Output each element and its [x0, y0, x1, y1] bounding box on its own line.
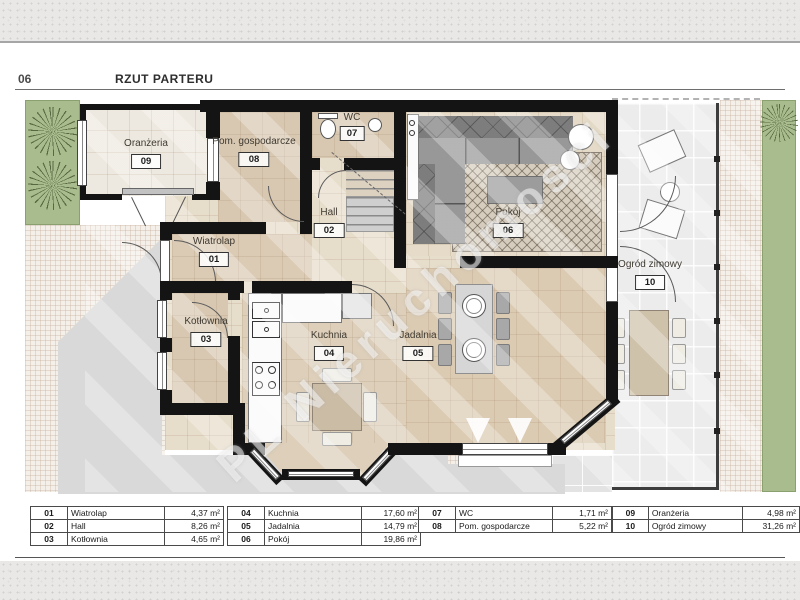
mullion [714, 156, 720, 162]
chair [363, 392, 377, 422]
stove-burner [255, 381, 263, 389]
legend-room-area: 31,26 m² [742, 520, 799, 533]
kitchen-table [312, 383, 362, 431]
kitchen-cabinet [282, 293, 342, 323]
room-number: 10 [635, 275, 666, 290]
legend-room-name: Hall [68, 520, 165, 533]
mullion [714, 428, 720, 434]
wall [200, 100, 618, 112]
window [77, 120, 87, 186]
chair [438, 318, 452, 340]
plant-icon [28, 107, 77, 156]
room-label-kotlownia: Kotłownia 03 [184, 316, 227, 347]
wall [312, 158, 320, 170]
wall [80, 194, 122, 200]
legend-room-area: 4,98 m² [742, 507, 799, 520]
sink-icon [368, 118, 382, 132]
legend-room-area: 4,65 m² [165, 533, 224, 546]
wall [160, 222, 172, 240]
room-label-pom-gospodarcze: Pom. gospodarcze 08 [212, 136, 295, 167]
legend-row: 10Ogród zimowy31,26 m² [613, 520, 800, 533]
chair [438, 292, 452, 314]
entrance-opening [160, 240, 170, 282]
legend-room-number: 10 [613, 520, 649, 533]
mullion [714, 372, 720, 378]
toilet-icon [320, 119, 336, 139]
legend-room-area: 14,79 m² [362, 520, 421, 533]
room-label-hall: Hall 02 [314, 207, 345, 238]
wall [160, 338, 172, 352]
chair [296, 392, 310, 422]
legend-row: 06Pokój19,86 m² [228, 533, 421, 546]
room-name: Kotłownia [184, 316, 227, 327]
stove-burner [268, 366, 276, 374]
window [157, 352, 167, 390]
room-number: 09 [131, 154, 162, 169]
legend-room-name: Wiatrolap [68, 507, 165, 520]
legend-room-area: 5,22 m² [553, 520, 612, 533]
wall [606, 302, 618, 400]
legend-room-number: 08 [419, 520, 456, 533]
legend-row: 01Wiatrolap4,37 m² [31, 507, 224, 520]
legend-room-area: 8,26 m² [165, 520, 224, 533]
legend-room-area: 4,37 m² [165, 507, 224, 520]
room-number: 07 [340, 126, 365, 141]
garden-strip-right [762, 100, 796, 492]
room-name: Pokój [493, 207, 524, 218]
legend-room-number: 06 [228, 533, 265, 546]
legend-row: 05Jadalnia14,79 m² [228, 520, 421, 533]
legend-room-number: 09 [613, 507, 649, 520]
terrace-door-sill [458, 455, 552, 467]
room-label-kuchnia: Kuchnia 04 [311, 330, 347, 361]
legend-room-name: Pokój [265, 533, 362, 546]
room-number: 01 [199, 252, 230, 267]
room-name: Ogród zimowy [618, 259, 682, 270]
room-name: Wiatrolap [193, 236, 235, 247]
chair [496, 344, 510, 366]
radiator-valve [409, 120, 415, 126]
legend-table-4: 09Oranżeria4,98 m² 10Ogród zimowy31,26 m… [612, 506, 800, 533]
footer-rule [15, 557, 785, 558]
wall [206, 100, 220, 138]
door-leaf [131, 197, 146, 226]
chair [322, 432, 352, 446]
floor-plan-page: 06 RZUT PARTERU [0, 0, 800, 600]
room-name: Kuchnia [311, 330, 347, 341]
legend-table-1: 01Wiatrolap4,37 m² 02Hall8,26 m² 03Kotło… [30, 506, 224, 546]
legend-room-number: 04 [228, 507, 265, 520]
wall [233, 415, 245, 443]
bay-wall [282, 469, 360, 480]
radiator [407, 114, 419, 200]
legend-room-number: 03 [31, 533, 68, 546]
roof-outline-dashed [612, 98, 760, 100]
legend-room-name: Ogród zimowy [648, 520, 742, 533]
legend-room-area: 17,60 m² [362, 507, 421, 520]
legend-table-3: 07WC1,71 m² 08Pom. gospodarcze5,22 m² [418, 506, 612, 533]
room-name: Oranżeria [124, 138, 168, 149]
door-leaf [508, 418, 532, 443]
stove-burner [255, 366, 263, 374]
legend-room-number: 07 [419, 507, 456, 520]
terrace-door [462, 443, 548, 455]
room-label-wiatrolap: Wiatrolap 01 [193, 236, 235, 267]
legend-room-name: WC [456, 507, 553, 520]
legend-row: 04Kuchnia17,60 m² [228, 507, 421, 520]
legend-room-name: Jadalnia [265, 520, 362, 533]
chair [496, 292, 510, 314]
room-number: 06 [493, 223, 524, 238]
sink-drain [264, 308, 269, 313]
sofa [413, 116, 573, 138]
plant-icon [28, 161, 77, 210]
sofa [435, 164, 465, 244]
legend-room-area: 19,86 m² [362, 533, 421, 546]
coffee-table [487, 176, 543, 204]
room-label-wc: WC 07 [340, 112, 365, 141]
side-table [568, 124, 594, 150]
room-label-oranzeria: Oranżeria 09 [124, 138, 168, 169]
legend-row: 07WC1,71 m² [419, 507, 612, 520]
chair [672, 344, 686, 364]
legend-room-name: Oranżeria [648, 507, 742, 520]
legend-row: 09Oranżeria4,98 m² [613, 507, 800, 520]
chair [438, 344, 452, 366]
wall [80, 104, 206, 110]
wall [228, 293, 240, 300]
room-label-pokoj: Pokój 06 [493, 207, 524, 238]
stairs-steps [346, 170, 394, 232]
plate-decor [466, 342, 482, 358]
wall [304, 222, 312, 234]
wall [606, 100, 618, 174]
legend-room-name: Kotłownia [68, 533, 165, 546]
window [157, 300, 167, 338]
legend-room-number: 05 [228, 520, 265, 533]
room-label-ogrod-zimowy: Ogród zimowy 10 [618, 259, 682, 290]
room-name: Jadalnia [399, 330, 436, 341]
winter-garden-door-opening [606, 174, 618, 302]
room-name: Hall [314, 207, 345, 218]
garden-dining-table [629, 310, 669, 396]
radiator-valve [409, 130, 415, 136]
paving-right [720, 100, 762, 492]
plate-decor [466, 298, 482, 314]
wall [160, 403, 245, 415]
legend-room-area: 1,71 m² [553, 507, 612, 520]
wall [160, 281, 244, 293]
side-table [560, 150, 580, 170]
room-number: 04 [314, 346, 345, 361]
stove-burner [268, 381, 276, 389]
door-threshold [122, 188, 194, 195]
door-leaf [466, 418, 490, 443]
wall [252, 281, 352, 293]
room-name: Pom. gospodarcze [212, 136, 295, 147]
legend-row: 08Pom. gospodarcze5,22 m² [419, 520, 612, 533]
sink-drain [264, 327, 269, 332]
mullion [714, 264, 720, 270]
legend-room-number: 02 [31, 520, 68, 533]
chair [672, 370, 686, 390]
plant-icon [760, 104, 798, 142]
wall [394, 100, 406, 268]
chair [496, 318, 510, 340]
room-number: 05 [403, 346, 434, 361]
room-number: 02 [314, 223, 345, 238]
wall [228, 336, 240, 403]
wall [206, 182, 220, 200]
wall [388, 443, 462, 455]
wall [460, 256, 618, 268]
legend-room-name: Pom. gospodarcze [456, 520, 553, 533]
bottom-texture-band [0, 561, 800, 600]
mullion [714, 318, 720, 324]
room-number: 03 [191, 332, 222, 347]
sofa [413, 138, 573, 164]
legend-row: 03Kotłownia4,65 m² [31, 533, 224, 546]
legend-row: 02Hall8,26 m² [31, 520, 224, 533]
legend-table-2: 04Kuchnia17,60 m² 05Jadalnia14,79 m² 06P… [227, 506, 421, 546]
legend-room-number: 01 [31, 507, 68, 520]
room-name: WC [340, 112, 365, 123]
room-number: 08 [239, 152, 270, 167]
window [288, 471, 354, 477]
legend-room-name: Kuchnia [265, 507, 362, 520]
room-label-jadalnia: Jadalnia 05 [399, 330, 436, 361]
chair [322, 368, 352, 382]
glass-wall [612, 487, 719, 490]
chair [672, 318, 686, 338]
mullion [714, 210, 720, 216]
wall [160, 222, 266, 234]
